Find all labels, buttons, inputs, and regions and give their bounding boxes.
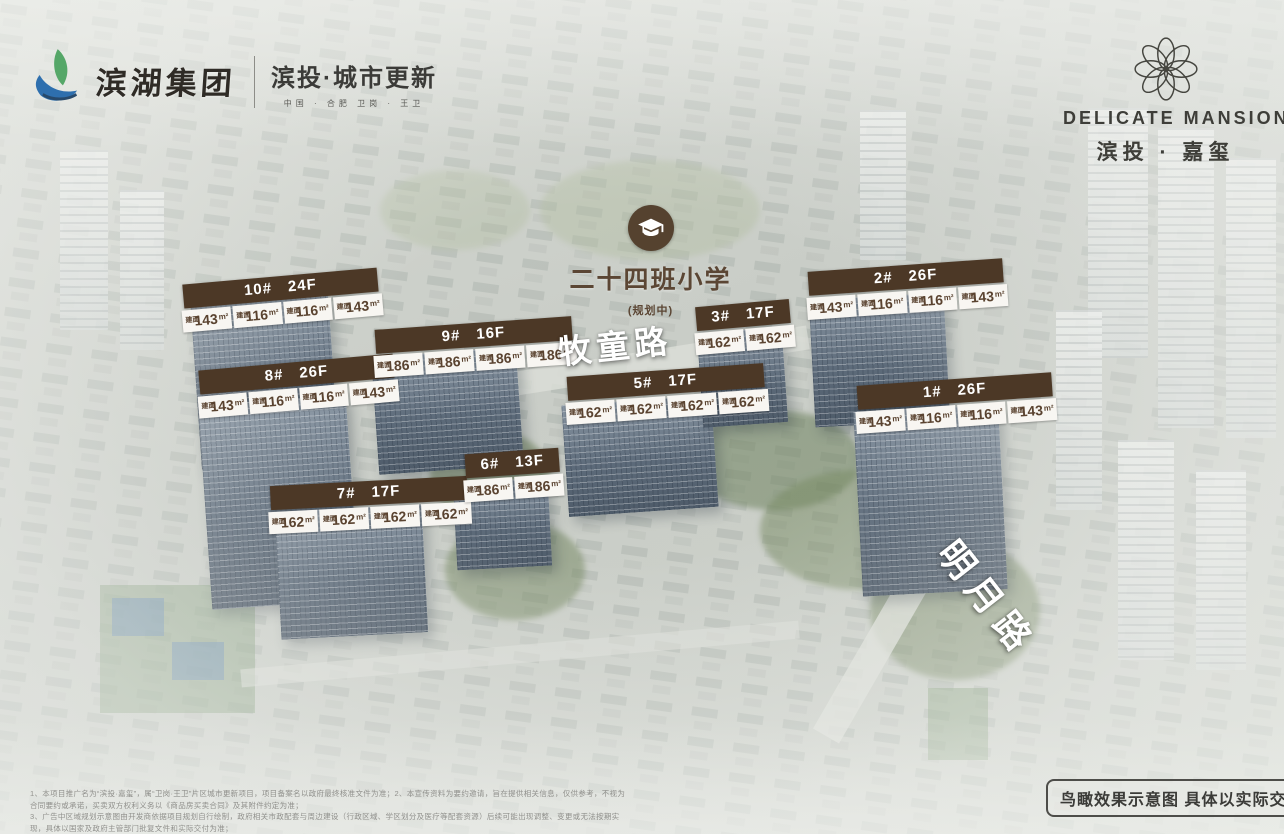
background-tower bbox=[1158, 128, 1214, 428]
area-value: 186 bbox=[386, 357, 410, 375]
area-cell: 建面186m² bbox=[463, 477, 514, 502]
area-value: 116 bbox=[920, 292, 944, 310]
graduation-cap-icon bbox=[637, 214, 665, 242]
school-name: 二十四班小学 bbox=[568, 260, 733, 296]
area-unit: m² bbox=[602, 403, 613, 415]
area-cell: 建面162m² bbox=[667, 392, 718, 417]
area-cell: 建面143m² bbox=[333, 293, 384, 319]
background-tower bbox=[860, 110, 906, 260]
area-prefix: 建面 bbox=[272, 519, 280, 527]
area-unit: m² bbox=[305, 513, 315, 524]
area-unit: m² bbox=[356, 510, 366, 521]
area-cell: 建面162m² bbox=[421, 502, 471, 527]
area-value: 162 bbox=[680, 396, 704, 414]
area-value: 162 bbox=[280, 513, 304, 530]
area-value: 116 bbox=[870, 295, 894, 313]
area-value: 143 bbox=[361, 383, 386, 401]
area-prefix: 建面 bbox=[236, 313, 245, 321]
area-prefix: 建面 bbox=[467, 487, 475, 495]
area-value: 186 bbox=[488, 349, 512, 367]
area-prefix: 建面 bbox=[620, 406, 628, 414]
area-prefix: 建面 bbox=[479, 355, 487, 363]
area-unit: m² bbox=[500, 480, 511, 492]
area-unit: m² bbox=[268, 305, 279, 317]
area-unit: m² bbox=[334, 387, 345, 399]
area-cell: 建面186m² bbox=[475, 345, 526, 370]
area-prefix: 建面 bbox=[1010, 408, 1018, 416]
area-value: 162 bbox=[731, 393, 755, 411]
area-unit: m² bbox=[653, 399, 664, 411]
building-number: 5# bbox=[633, 374, 653, 392]
area-cell: 建面116m² bbox=[233, 302, 283, 328]
area-value: 143 bbox=[868, 413, 892, 431]
area-cell: 建面116m² bbox=[857, 291, 907, 316]
area-unit: m² bbox=[458, 505, 468, 516]
area-unit: m² bbox=[284, 391, 295, 403]
school-marker-circle bbox=[628, 205, 674, 251]
area-prefix: 建面 bbox=[428, 359, 436, 367]
area-cell: 建面143m² bbox=[806, 295, 857, 320]
area-value: 143 bbox=[1019, 402, 1043, 420]
area-cell: 建面116m² bbox=[249, 388, 299, 414]
building-number: 1# bbox=[922, 383, 942, 401]
area-value: 162 bbox=[758, 329, 783, 347]
area-value: 186 bbox=[526, 477, 550, 495]
area-prefix: 建面 bbox=[336, 304, 345, 312]
area-unit: m² bbox=[992, 405, 1003, 417]
area-cell: 建面143m² bbox=[958, 284, 1009, 309]
area-prefix: 建面 bbox=[530, 352, 538, 360]
area-prefix: 建面 bbox=[749, 335, 758, 343]
brand-left-lockup: 滨湖集团 滨投·城市更新 中国 · 合肥 卫岗 · 王卫 bbox=[28, 44, 437, 109]
area-value: 186 bbox=[475, 481, 499, 499]
area-cell: 建面186m² bbox=[514, 473, 565, 498]
area-prefix: 建面 bbox=[286, 308, 295, 316]
building-number: 6# bbox=[480, 455, 500, 473]
area-unit: m² bbox=[704, 396, 715, 408]
building-floors: 17F bbox=[668, 371, 698, 390]
area-value: 116 bbox=[295, 302, 319, 320]
area-cell: 建面162m² bbox=[616, 396, 667, 421]
area-cell: 建面116m² bbox=[283, 298, 333, 324]
aerial-render-page: 滨湖集团 滨投·城市更新 中国 · 合肥 卫岗 · 王卫 DELICATE MA… bbox=[0, 0, 1284, 834]
area-prefix: 建面 bbox=[323, 516, 331, 524]
building-floors: 17F bbox=[371, 482, 401, 500]
sail-icon bbox=[28, 44, 90, 106]
area-value: 162 bbox=[434, 505, 458, 522]
area-value: 143 bbox=[345, 297, 370, 315]
area-cell: 建面162m² bbox=[370, 504, 420, 529]
area-cell: 建面162m² bbox=[565, 400, 616, 425]
tennis-court bbox=[928, 688, 988, 760]
area-unit: m² bbox=[461, 352, 472, 364]
brand-en-name: DELICATE MANSION bbox=[1063, 108, 1268, 129]
background-tower bbox=[1118, 440, 1174, 660]
area-value: 162 bbox=[707, 333, 732, 351]
brand-divider bbox=[254, 56, 255, 108]
area-cell: 建面143m² bbox=[855, 409, 906, 434]
building-number: 8# bbox=[264, 366, 284, 385]
brand-tagline: 中国 · 合肥 卫岗 · 王卫 bbox=[271, 98, 437, 109]
area-unit: m² bbox=[218, 310, 229, 322]
area-prefix: 建面 bbox=[302, 394, 311, 402]
disclaimer-line: 3、广告中区域规划示意图由开发商依据项目规划自行绘制，政府相关市政配套与周边建设… bbox=[30, 811, 630, 834]
area-unit: m² bbox=[512, 349, 523, 361]
legal-disclaimer: 1、本项目推广名为“滨投·嘉玺”，属“卫岗·王卫”片区城市更新项目，项目备案名以… bbox=[30, 788, 630, 834]
area-value: 143 bbox=[970, 288, 994, 306]
area-cell: 建面143m² bbox=[182, 306, 233, 332]
building-number: 9# bbox=[441, 327, 461, 345]
area-value: 162 bbox=[383, 508, 407, 525]
area-cell: 建面162m² bbox=[718, 389, 769, 414]
area-unit: m² bbox=[407, 508, 417, 519]
area-cell: 建面116m² bbox=[957, 402, 1007, 427]
area-value: 116 bbox=[919, 409, 943, 427]
field-greenery bbox=[380, 170, 530, 250]
basketball-court bbox=[172, 642, 224, 680]
basketball-court bbox=[112, 598, 164, 636]
area-prefix: 建面 bbox=[810, 305, 818, 313]
area-cell: 建面186m² bbox=[373, 353, 424, 378]
area-prefix: 建面 bbox=[425, 511, 433, 519]
background-tower bbox=[1196, 470, 1246, 670]
background-tower bbox=[60, 150, 108, 330]
area-value: 116 bbox=[245, 306, 269, 324]
area-cell: 建面162m² bbox=[319, 507, 369, 532]
brand-division-name: 滨投·城市更新 bbox=[271, 58, 437, 93]
area-prefix: 建面 bbox=[910, 415, 918, 423]
brand-division-block: 滨投·城市更新 中国 · 合肥 卫岗 · 王卫 bbox=[271, 44, 437, 109]
area-value: 116 bbox=[261, 392, 285, 410]
area-value: 143 bbox=[194, 311, 219, 329]
area-unit: m² bbox=[782, 328, 793, 340]
building-floors: 16F bbox=[476, 324, 506, 343]
area-unit: m² bbox=[893, 294, 904, 306]
area-unit: m² bbox=[892, 412, 903, 424]
area-cell: 建面143m² bbox=[198, 392, 249, 418]
building-label-6: 6#13F建面186m²建面186m² bbox=[461, 448, 564, 503]
area-unit: m² bbox=[943, 291, 954, 303]
building-number: 2# bbox=[873, 269, 893, 287]
area-value: 143 bbox=[210, 397, 235, 415]
area-unit: m² bbox=[755, 392, 766, 404]
area-unit: m² bbox=[234, 396, 245, 408]
area-cell: 建面162m² bbox=[268, 510, 318, 535]
area-prefix: 建面 bbox=[377, 363, 385, 371]
brand-group-name: 滨湖集团 bbox=[94, 58, 237, 103]
area-prefix: 建面 bbox=[859, 419, 867, 427]
brand-cn-name: 滨投 · 嘉玺 bbox=[1063, 136, 1268, 166]
background-tower bbox=[120, 190, 164, 350]
flower-logo-icon bbox=[1125, 34, 1207, 104]
area-prefix: 建面 bbox=[569, 410, 577, 418]
area-prefix: 建面 bbox=[911, 297, 919, 305]
area-prefix: 建面 bbox=[201, 403, 210, 411]
area-prefix: 建面 bbox=[722, 399, 730, 407]
area-cell: 建面186m² bbox=[424, 349, 475, 374]
area-value: 162 bbox=[331, 511, 355, 528]
area-value: 116 bbox=[969, 406, 993, 424]
area-unit: m² bbox=[1043, 401, 1054, 413]
area-value: 186 bbox=[437, 353, 461, 371]
building-number: 10# bbox=[243, 280, 272, 299]
area-unit: m² bbox=[994, 287, 1005, 299]
area-unit: m² bbox=[731, 332, 742, 344]
background-tower bbox=[1056, 310, 1102, 510]
area-prefix: 建面 bbox=[960, 411, 968, 419]
area-cell: 建面116m² bbox=[906, 405, 956, 430]
background-tower bbox=[1226, 158, 1276, 438]
area-cell: 建面162m² bbox=[745, 325, 796, 351]
area-prefix: 建面 bbox=[518, 483, 526, 491]
area-prefix: 建面 bbox=[252, 399, 261, 407]
area-cell: 建面143m² bbox=[349, 379, 400, 405]
area-unit: m² bbox=[942, 408, 953, 420]
building-floors: 24F bbox=[287, 276, 317, 295]
area-cell: 建面116m² bbox=[908, 288, 958, 313]
area-value: 116 bbox=[311, 388, 335, 406]
area-unit: m² bbox=[551, 477, 562, 489]
area-prefix: 建面 bbox=[961, 294, 969, 302]
disclaimer-line: 1、本项目推广名为“滨投·嘉玺”，属“卫岗·王卫”片区城市更新项目，项目备案名以… bbox=[30, 788, 630, 811]
area-unit: m² bbox=[410, 356, 421, 368]
school-marker: 二十四班小学 (规划中) bbox=[568, 205, 733, 318]
area-prefix: 建面 bbox=[698, 340, 707, 348]
area-value: 162 bbox=[629, 400, 653, 418]
area-cell: 建面143m² bbox=[1007, 398, 1058, 423]
building-floors: 26F bbox=[908, 266, 938, 285]
area-unit: m² bbox=[369, 296, 380, 308]
area-cell: 建面162m² bbox=[694, 329, 745, 355]
brand-right-lockup: DELICATE MANSION 滨投 · 嘉玺 bbox=[1063, 34, 1268, 166]
area-unit: m² bbox=[385, 382, 396, 394]
area-prefix: 建面 bbox=[374, 514, 382, 522]
area-prefix: 建面 bbox=[671, 402, 679, 410]
area-prefix: 建面 bbox=[185, 317, 194, 325]
building-floors: 13F bbox=[515, 452, 545, 471]
area-unit: m² bbox=[318, 301, 329, 313]
area-unit: m² bbox=[843, 298, 854, 310]
building-number: 7# bbox=[336, 485, 356, 503]
area-value: 143 bbox=[819, 299, 843, 317]
building-floors: 26F bbox=[957, 380, 987, 399]
area-prefix: 建面 bbox=[352, 390, 361, 398]
building-floors: 17F bbox=[745, 303, 775, 322]
render-disclaimer-badge: 鸟瞰效果示意图 具体以实际交付为准 bbox=[1046, 779, 1284, 817]
building-floors: 26F bbox=[299, 362, 329, 381]
area-prefix: 建面 bbox=[861, 301, 869, 309]
area-value: 162 bbox=[578, 404, 602, 422]
area-cell: 建面116m² bbox=[299, 384, 349, 410]
